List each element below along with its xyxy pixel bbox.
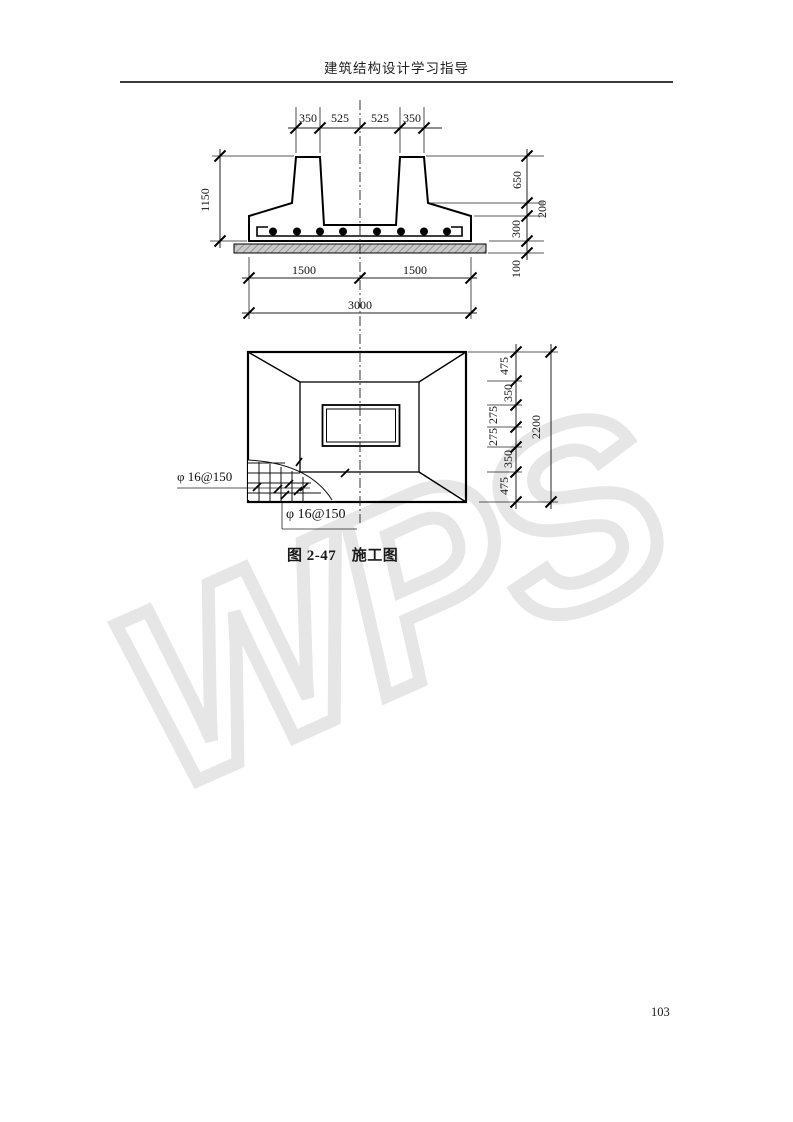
plan-view: 475 350 275 275 350 475 2200 φ 16@150 φ … [177, 344, 558, 529]
dim-label: 525 [371, 111, 389, 125]
dim-label: 2200 [529, 415, 543, 439]
column-inner-rect [327, 409, 396, 442]
dim-label: 650 [510, 171, 524, 189]
page-number: 103 [651, 1005, 670, 1020]
section-dim-ticks [215, 123, 533, 319]
plan-extension-lines [468, 352, 558, 502]
document-page: WPS 建筑结构设计学习指导 [0, 0, 793, 1122]
figure-caption: 图 2-47 施工图 [287, 544, 398, 565]
dim-label: 300 [509, 220, 523, 238]
dim-label: 200 [535, 200, 549, 218]
rebar-bar [257, 227, 462, 236]
section-dim-labels: 350 525 525 350 1150 650 200 300 100 150… [198, 111, 549, 312]
dim-label: 1500 [403, 263, 427, 277]
dim-label: 100 [509, 260, 523, 278]
dim-label: 350 [501, 450, 515, 468]
page-header: 建筑结构设计学习指导 [0, 57, 793, 77]
dim-label: 1150 [198, 188, 212, 212]
dim-label: 275 [486, 406, 500, 424]
rebar-zone-fill [248, 460, 332, 500]
dim-label: 475 [497, 477, 511, 495]
dim-label: 350 [501, 384, 515, 402]
dim-label: 475 [497, 357, 511, 375]
rebar-label-bottom: φ 16@150 [286, 507, 345, 522]
dim-label: 1500 [292, 263, 316, 277]
rebar-label-left: φ 16@150 [177, 469, 232, 484]
dim-label: 350 [299, 111, 317, 125]
header-rule [120, 81, 673, 83]
section-view: 350 525 525 350 1150 650 200 300 100 150… [198, 107, 549, 319]
dim-label: 275 [486, 428, 500, 446]
construction-drawing: 350 525 525 350 1150 650 200 300 100 150… [100, 95, 680, 535]
dim-label: 525 [331, 111, 349, 125]
plan-inner-rect [300, 382, 419, 472]
column-outer-rect [323, 405, 400, 446]
dim-label: 350 [403, 111, 421, 125]
